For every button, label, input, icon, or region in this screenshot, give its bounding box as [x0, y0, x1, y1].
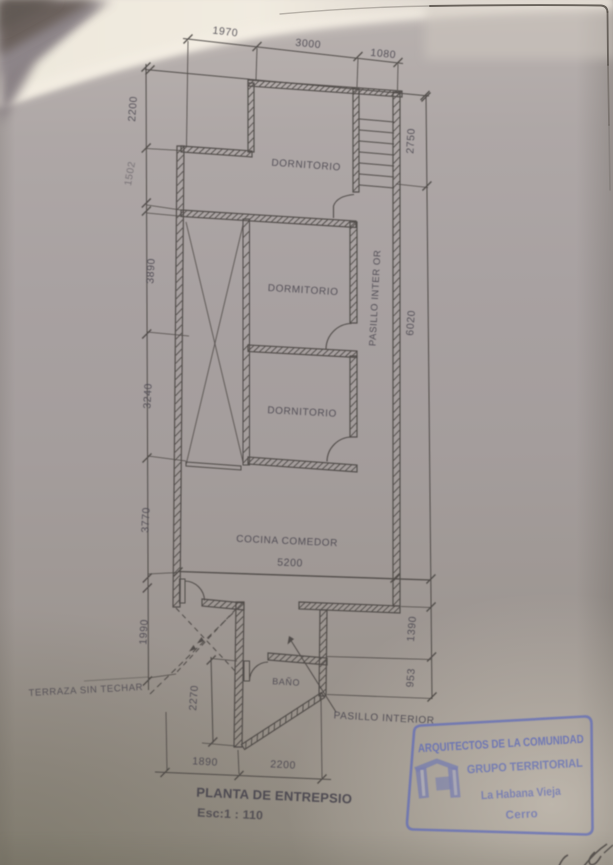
svg-text:1502: 1502	[123, 160, 138, 186]
svg-text:1890: 1890	[192, 755, 218, 768]
svg-text:PASILLO INTERIOR: PASILLO INTERIOR	[333, 710, 435, 726]
svg-text:3240: 3240	[141, 383, 154, 409]
svg-text:PASILLO INTER OR: PASILLO INTER OR	[367, 249, 383, 346]
svg-text:Esc:1 : 110: Esc:1 : 110	[197, 806, 264, 823]
svg-text:2270: 2270	[187, 685, 201, 712]
svg-text:953: 953	[404, 668, 418, 688]
svg-text:DORNITORIO: DORNITORIO	[267, 405, 337, 420]
svg-text:2750: 2750	[404, 128, 417, 154]
svg-text:La Habana Vieja: La Habana Vieja	[480, 785, 561, 803]
svg-text:COCINA COMEDOR: COCINA COMEDOR	[236, 534, 338, 549]
svg-text:GRUPO TERRITORIAL: GRUPO TERRITORIAL	[466, 756, 583, 777]
svg-text:PLANTA DE ENTREPSIO: PLANTA DE ENTREPSIO	[196, 785, 353, 807]
svg-text:5200: 5200	[277, 556, 303, 569]
svg-text:ARQUITECTOS DE LA COMUNIDAD: ARQUITECTOS DE LA COMUNIDAD	[418, 732, 585, 756]
svg-text:Cerro: Cerro	[505, 807, 538, 822]
svg-text:TERRAZA SIN TECHAR: TERRAZA SIN TECHAR	[28, 682, 143, 699]
svg-text:3890: 3890	[144, 258, 157, 284]
svg-text:3000: 3000	[295, 37, 322, 51]
svg-text:3770: 3770	[139, 507, 152, 533]
svg-text:BAÑO: BAÑO	[272, 676, 300, 687]
svg-text:2200: 2200	[126, 96, 140, 123]
svg-text:DORNITORIO: DORNITORIO	[271, 158, 341, 174]
svg-text:2200: 2200	[270, 758, 296, 771]
svg-text:6020: 6020	[404, 310, 418, 337]
svg-text:1390: 1390	[405, 615, 419, 642]
svg-text:DORMITORIO: DORMITORIO	[267, 283, 338, 298]
svg-text:1080: 1080	[370, 47, 397, 61]
svg-text:1990: 1990	[137, 619, 150, 645]
